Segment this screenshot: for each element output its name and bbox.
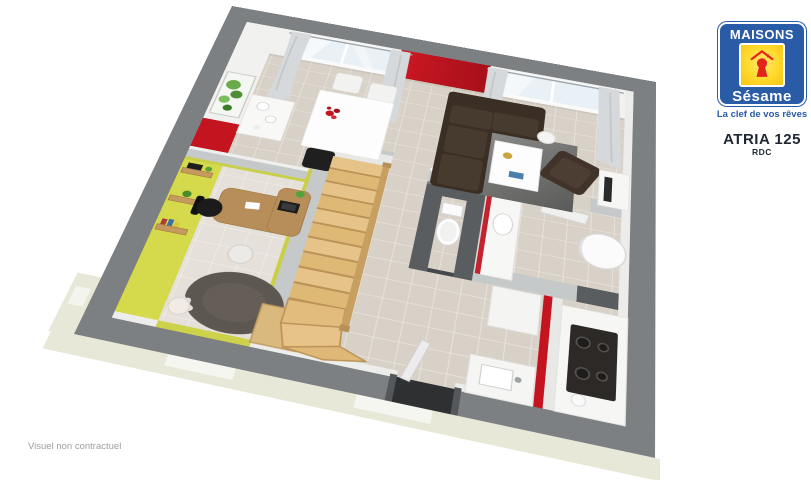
keyhole-icon [745,48,779,82]
brand-tagline: La clef de vos rêves [700,109,811,120]
keyhole-badge [739,43,785,87]
disclaimer-text: Visuel non contractuel [28,441,121,452]
cooktop [566,324,618,402]
brand-logo: MAISONS Sésame [718,22,806,106]
brand-name-bottom: Sésame [732,88,792,105]
floorplan-svg [74,6,656,458]
coffee-table [489,141,543,192]
tv-stand [598,170,630,211]
brand-name-top: MAISONS [730,27,794,42]
floorplan-visual-page: MAISONS Sésame La clef de vos rêves ATRI… [0,0,811,480]
model-level: RDC [700,147,811,157]
model-name: ATRIA 125 [700,131,811,148]
floorplan-3d [74,6,656,458]
